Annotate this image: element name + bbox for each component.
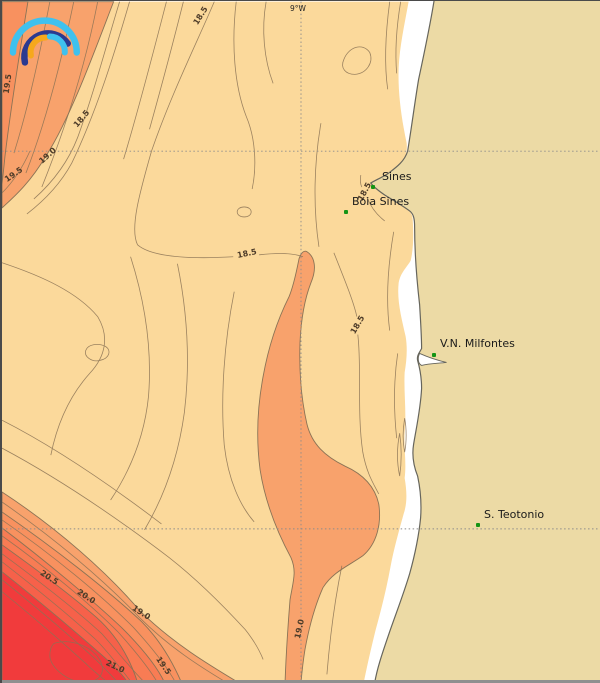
sst-contour-map: 9°W 19.518.518.519.019.518.518.518.520.5… (0, 0, 600, 683)
map-canvas (2, 1, 600, 683)
